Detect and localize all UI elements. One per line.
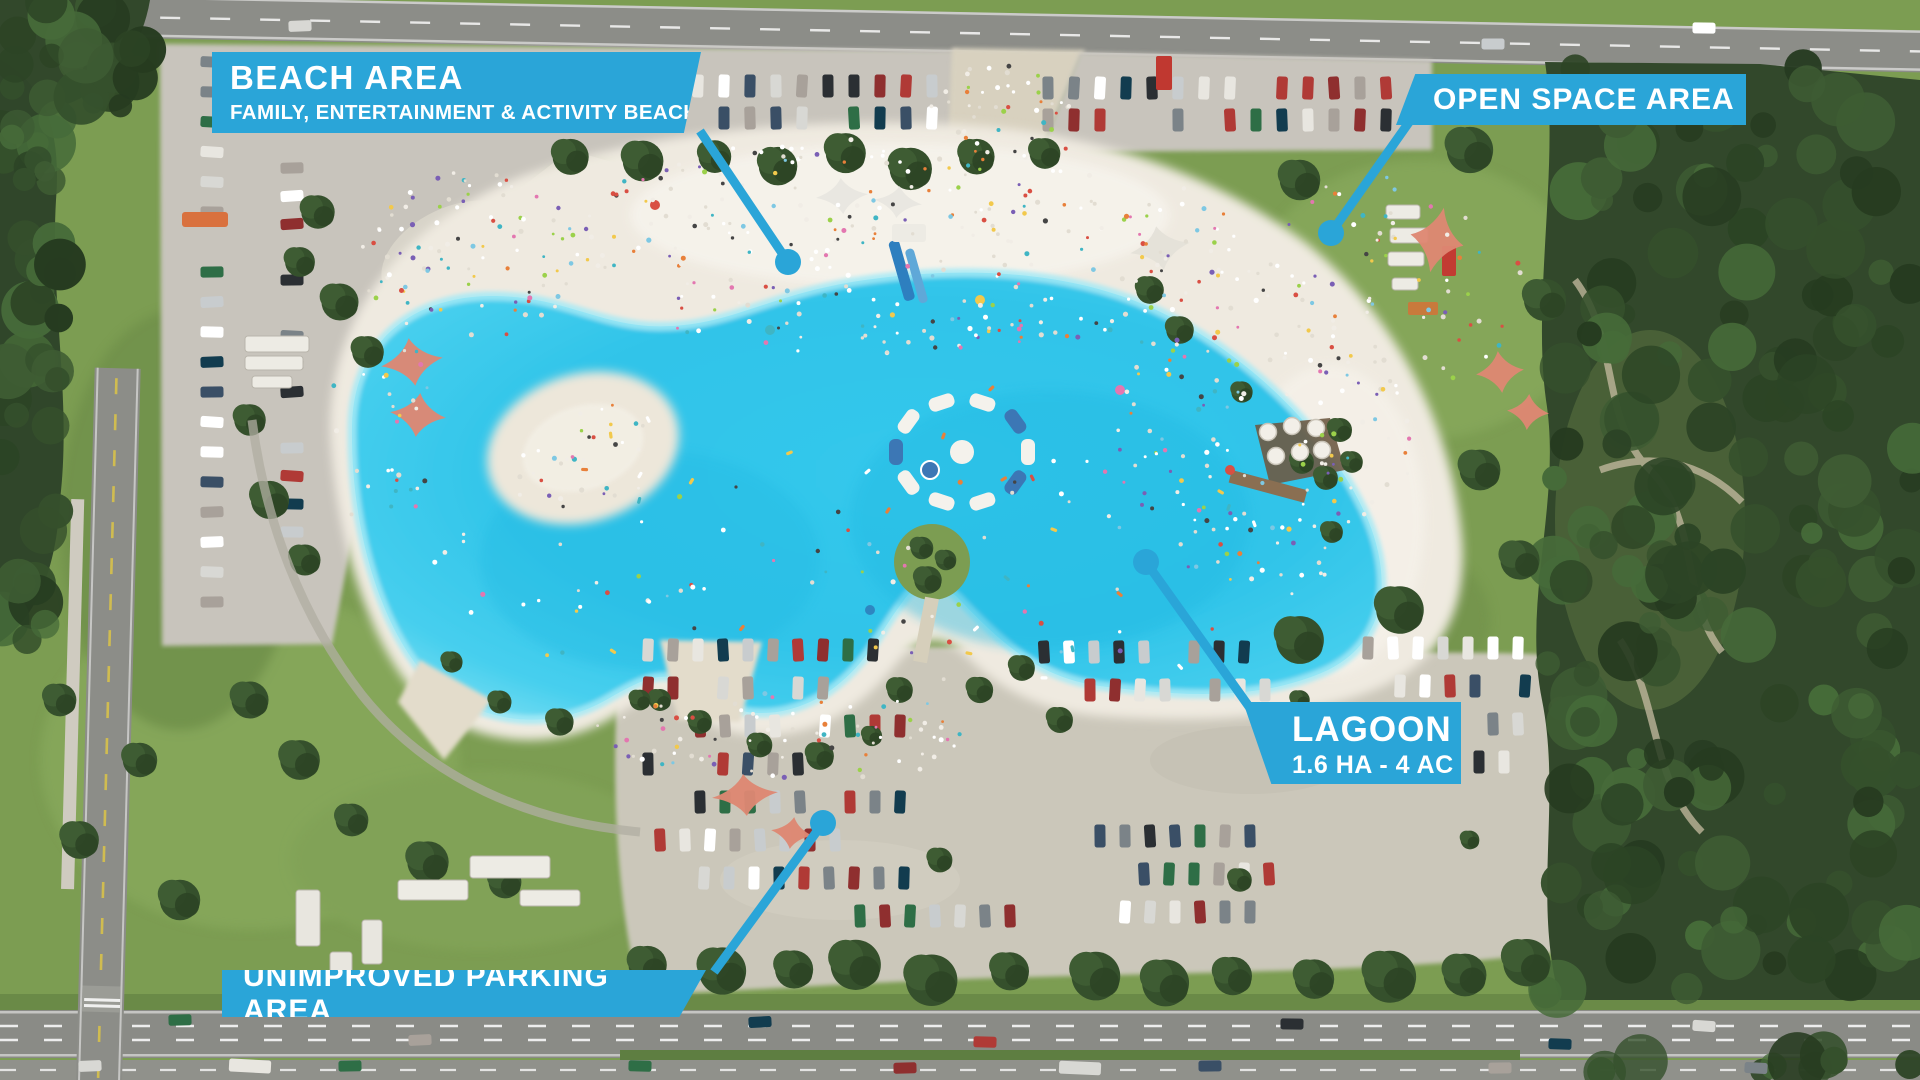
aerial-map-rendering (0, 0, 1920, 1080)
aerial-site-plan: BEACH AREA FAMILY, ENTERTAINMENT & ACTIV… (0, 0, 1920, 1080)
